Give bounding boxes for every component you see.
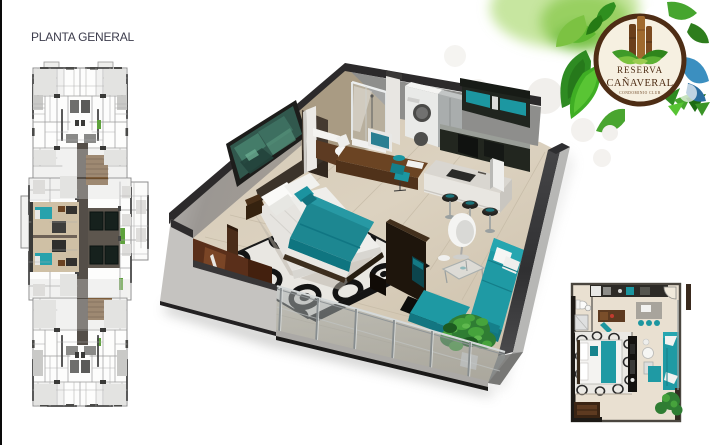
svg-text:PLANTA GENERAL: PLANTA GENERAL bbox=[31, 30, 135, 44]
svg-text:CONDOMINIO CLUB: CONDOMINIO CLUB bbox=[619, 91, 661, 95]
svg-text:CAÑAVERAL: CAÑAVERAL bbox=[607, 77, 674, 89]
svg-text:RESERVA: RESERVA bbox=[617, 65, 663, 75]
